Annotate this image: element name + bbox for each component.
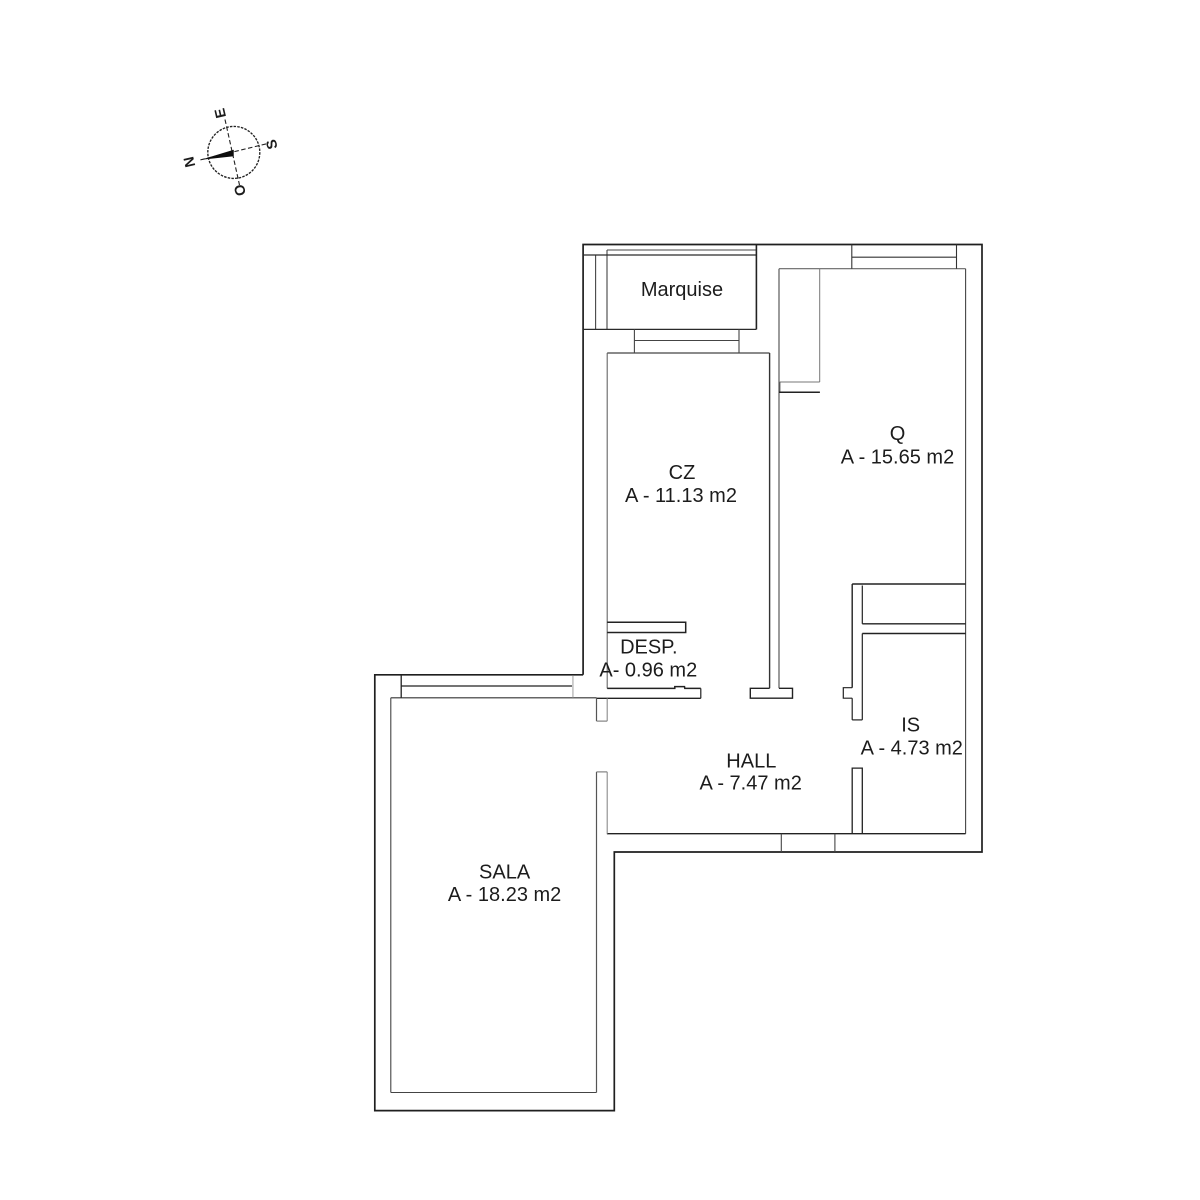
svg-text:A - 7.47 m2: A - 7.47 m2 [700, 772, 802, 794]
svg-text:S: S [264, 137, 282, 150]
svg-text:Marquise: Marquise [641, 279, 723, 301]
svg-text:HALL: HALL [726, 750, 776, 772]
svg-text:A - 11.13 m2: A - 11.13 m2 [625, 485, 737, 507]
svg-text:A - 4.73 m2: A - 4.73 m2 [861, 738, 963, 760]
svg-text:Q: Q [890, 423, 906, 445]
svg-text:A - 18.23 m2: A - 18.23 m2 [448, 884, 561, 906]
svg-text:SALA: SALA [479, 862, 531, 884]
svg-text:N: N [181, 155, 199, 169]
svg-text:E: E [212, 106, 230, 119]
svg-text:DESP.: DESP. [620, 637, 677, 659]
svg-text:A - 15.65 m2: A - 15.65 m2 [841, 447, 954, 469]
svg-text:IS: IS [901, 715, 920, 737]
svg-text:A- 0.96 m2: A- 0.96 m2 [599, 659, 697, 681]
svg-text:O: O [232, 183, 250, 198]
svg-text:CZ: CZ [669, 462, 696, 484]
